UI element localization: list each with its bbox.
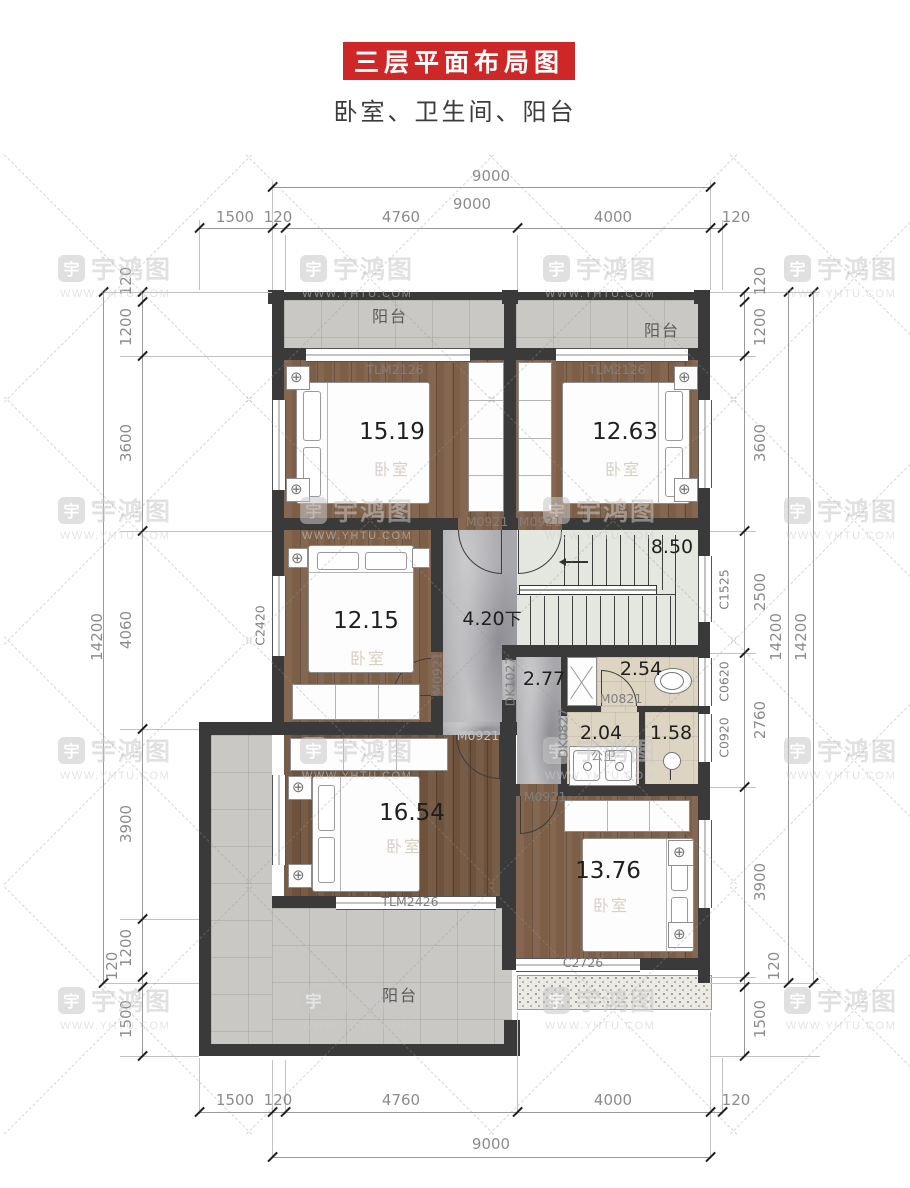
sliding-door-tlm2126-left <box>306 348 470 362</box>
dim-seg: 2760 <box>751 690 769 750</box>
window-c0620 <box>698 658 712 706</box>
nightstand-lamp-icon: ⊕ <box>290 370 303 385</box>
watermark: 宇宇鸿图WWW.YHTU.COM <box>784 492 898 542</box>
room-label-balcony-bottom: 阳台 <box>360 982 440 1006</box>
watermark-brand: 宇鸿图 <box>817 982 898 1018</box>
area-toilet: 2.54 <box>606 658 676 680</box>
dim-seg: 120 <box>248 1091 308 1109</box>
room-label-balcony-tl: 阳台 <box>350 303 430 327</box>
dashed-guide-line <box>730 636 910 884</box>
room-label-bedroom-br: 卧室 <box>571 892 651 916</box>
dim-top-total: 9000 <box>461 167 521 185</box>
balcony-bottom-floor <box>272 908 512 1044</box>
code-c0920: C0920 <box>717 698 732 778</box>
dim-seg: 120 <box>706 208 766 226</box>
dim-seg: 3600 <box>751 413 769 473</box>
code-tlm2426: TLM2426 <box>370 894 450 909</box>
wardrobe <box>564 800 690 832</box>
dim-seg: 1200 <box>751 297 769 357</box>
page-title: 三层平面布局图 <box>354 43 564 79</box>
code-tlm2126-right: TLM2126 <box>577 362 657 377</box>
page-subtitle: 卧室、卫生间、阳台 <box>0 92 910 127</box>
watermark: 宇宇鸿图WWW.YHTU.COM <box>784 732 898 782</box>
window-right-lower <box>698 820 712 908</box>
dim-seg: 4060 <box>117 600 135 660</box>
code-c2420: C2420 <box>253 586 268 666</box>
window-right-bedroom <box>698 400 712 488</box>
dashed-guide-line <box>730 636 910 884</box>
title-banner: 三层平面布局图 <box>343 42 575 80</box>
dim-seg: 1500 <box>751 989 769 1049</box>
dim-seg: 120 <box>706 1091 766 1109</box>
area-corridor: 2.77 <box>509 668 579 690</box>
nightstand-lamp-icon: ⊕ <box>291 551 304 566</box>
area-bedroom-tr: 12.63 <box>585 419 665 445</box>
watermark-brand: 宇鸿图 <box>817 732 898 768</box>
area-stairs: 8.50 <box>632 536 712 558</box>
window-left-bedroom <box>272 400 286 490</box>
area-bedroom-br: 13.76 <box>568 858 648 884</box>
dim-seg: 3900 <box>117 794 135 854</box>
watermark-logo-icon: 宇 <box>58 737 85 764</box>
watermark-url: WWW.YHTU.COM <box>786 530 898 542</box>
window-left-lower <box>272 775 286 865</box>
sliding-door-tlm2126-right <box>556 348 688 362</box>
balcony-bottom-left-strip <box>211 735 272 1044</box>
balcony-top-rail <box>272 292 710 300</box>
dim-left-total: 14200 <box>88 607 106 667</box>
door-opening <box>601 706 637 712</box>
watermark-url: WWW.YHTU.COM <box>60 1020 172 1032</box>
watermark-url: WWW.YHTU.COM <box>786 288 898 300</box>
nightstand-lamp-icon: ⊕ <box>678 370 691 385</box>
code-tlm2126-left: TLM2126 <box>355 362 435 377</box>
stairs-handrail <box>519 585 657 595</box>
code-dk0827: DK0827 <box>556 694 571 774</box>
window-c2420 <box>272 576 286 656</box>
dim-seg: 4000 <box>583 1091 643 1109</box>
wall-midband-left <box>199 722 443 735</box>
area-bedroom-ml: 12.15 <box>326 608 406 634</box>
watermark-logo-icon: 宇 <box>784 987 811 1014</box>
code-m0921-hall-right: M0921 <box>500 514 580 529</box>
shower-head <box>663 752 681 770</box>
area-bedroom-bl: 16.54 <box>372 800 452 826</box>
room-label-bath: 公卫 <box>569 747 639 764</box>
dim-seg: 4000 <box>583 208 643 226</box>
watermark: 宇宇鸿图WWW.YHTU.COM <box>58 732 172 782</box>
code-m0921-ml: M0921 <box>430 634 445 714</box>
stairs-direction-arrow <box>562 561 588 563</box>
watermark-brand: 宇鸿图 <box>576 250 657 286</box>
dim-seg: 4760 <box>371 208 431 226</box>
floorplan-canvas: 三层平面布局图 卧室、卫生间、阳台 宇宇鸿图WWW.YHTU.COM宇宇鸿图WW… <box>0 0 910 1188</box>
watermark-url: WWW.YHTU.COM <box>545 1020 657 1032</box>
wall-bedroom-br-bottom <box>640 958 710 970</box>
dim-right-total-1: 14200 <box>767 607 785 667</box>
wall-balcony-left-outer <box>199 722 211 1056</box>
dim-seg: 3600 <box>117 413 135 473</box>
wardrobe <box>292 684 420 720</box>
wardrobe <box>518 362 552 512</box>
dim-seg: 1200 <box>117 297 135 357</box>
room-label-bedroom-bl: 卧室 <box>364 833 444 857</box>
watermark-logo-icon: 宇 <box>58 255 85 282</box>
watermark-logo-icon: 宇 <box>543 255 570 282</box>
code-m0921-br: M0921 <box>505 789 585 804</box>
watermark-logo-icon: 宇 <box>58 497 85 524</box>
dim-seg: 1500 <box>117 989 135 1049</box>
watermark: 宇宇鸿图WWW.YHTU.COM <box>58 492 172 542</box>
room-label-bedroom-tl: 卧室 <box>352 456 432 480</box>
code-c1525: C1525 <box>717 550 732 630</box>
watermark-brand: 宇鸿图 <box>817 250 898 286</box>
nightstand-lamp-icon: ⊕ <box>673 845 686 860</box>
wardrobe <box>468 362 504 512</box>
nightstand-lamp-icon: ⊕ <box>292 780 305 795</box>
watermark-brand: 宇鸿图 <box>817 492 898 528</box>
room-label-balcony-tr: 阳台 <box>622 317 702 341</box>
nightstand-lamp-icon: ⊕ <box>678 482 691 497</box>
watermark-url: WWW.YHTU.COM <box>60 288 172 300</box>
nightstand <box>412 548 430 568</box>
dim-bottom-total: 9000 <box>461 1135 521 1153</box>
dim-seg: 4760 <box>371 1091 431 1109</box>
code-dk1027: DK1027 <box>503 642 518 722</box>
room-label-bedroom-ml: 卧室 <box>328 645 408 669</box>
wall-balcony-bottom <box>199 1044 520 1056</box>
wardrobe <box>290 738 448 771</box>
watermark-logo-icon: 宇 <box>300 255 327 282</box>
nightstand-lamp-icon: ⊕ <box>290 482 303 497</box>
dim-top-total-inner: 9000 <box>442 195 502 213</box>
watermark-logo-icon: 宇 <box>784 255 811 282</box>
code-m0821: M0821 <box>581 691 661 706</box>
watermark-url: WWW.YHTU.COM <box>786 1020 898 1032</box>
wall-center-upper <box>504 292 516 530</box>
area-hall: 4.20下 <box>447 605 537 630</box>
wall-stairs-bottom <box>502 645 710 657</box>
dim-seg: 120 <box>103 936 121 996</box>
code-c2726: C2726 <box>543 955 623 970</box>
watermark-logo-icon: 宇 <box>58 987 85 1014</box>
gravel-ledge <box>517 975 712 1010</box>
code-m0921-bl: M0921 <box>438 728 518 743</box>
area-bath: 2.04 <box>566 722 636 744</box>
area-shower: 1.58 <box>636 722 706 744</box>
nightstand-lamp-icon: ⊕ <box>673 927 686 942</box>
watermark-url: WWW.YHTU.COM <box>60 770 172 782</box>
watermark-url: WWW.YHTU.COM <box>786 770 898 782</box>
area-bedroom-tl: 15.19 <box>352 419 432 445</box>
window-c1525 <box>698 556 712 622</box>
dim-seg: 3900 <box>751 852 769 912</box>
watermark: 宇宇鸿图WWW.YHTU.COM <box>784 982 898 1032</box>
dim-seg: 120 <box>765 936 783 996</box>
room-label-bedroom-tr: 卧室 <box>583 456 663 480</box>
stairs-lower-flight <box>517 596 675 645</box>
dim-right-total-2: 14200 <box>792 607 810 667</box>
dim-seg: 120 <box>248 208 308 226</box>
watermark-brand: 宇鸿图 <box>333 250 414 286</box>
nightstand-lamp-icon: ⊕ <box>292 868 305 883</box>
